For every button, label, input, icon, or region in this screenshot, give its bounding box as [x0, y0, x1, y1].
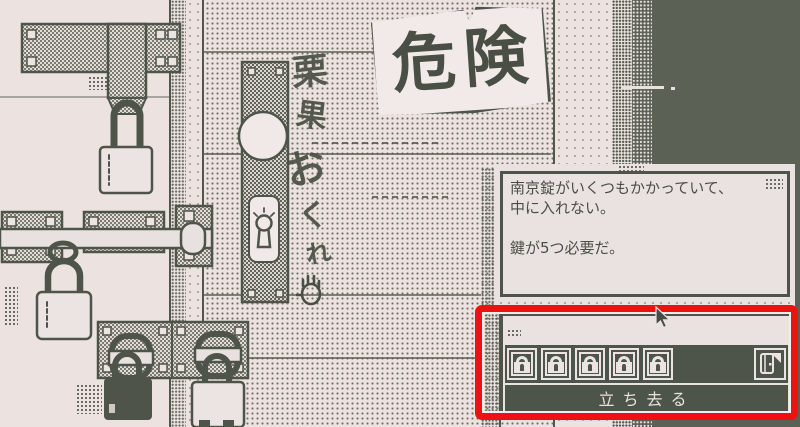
arrow-cursor-icon — [654, 306, 672, 334]
game-screen: 危険 栗果おくれ 南京錠がいくつもかかっていて、 中に入れない。 鍵が5つ必要だ… — [0, 0, 800, 427]
message-text: 南京錠がいくつもかかっていて、 — [510, 179, 733, 197]
message-line-2: 鍵が5つ必要だ。 — [510, 238, 780, 258]
graffiti-column: 栗果おくれ — [286, 55, 356, 325]
highlight-rectangle — [475, 305, 798, 420]
message-line-1: 南京錠がいくつもかかっていて、 中に入れない。 — [510, 178, 780, 218]
message-text: 鍵が5つ必要だ。 — [510, 239, 624, 257]
graffiti-char: 栗 — [291, 53, 328, 93]
graffiti-char: 果 — [294, 99, 329, 134]
graffiti-char: れ — [304, 239, 333, 268]
keyhole-plate — [249, 196, 279, 262]
bottom-hasp-padlocks — [98, 322, 248, 427]
message-box: 南京錠がいくつもかかっていて、 中に入れない。 鍵が5つ必要だ。 — [500, 171, 790, 297]
message-window: 南京錠がいくつもかかっていて、 中に入れない。 鍵が5つ必要だ。 — [495, 164, 795, 310]
message-text: 中に入れない。 — [510, 199, 615, 217]
graffiti-char: お — [282, 145, 330, 193]
graffiti-char: く — [298, 200, 329, 232]
danger-sign-text: 危険 — [382, 24, 538, 98]
door-knob — [239, 112, 287, 160]
door-handle — [239, 62, 288, 302]
slide-bolt-padlock — [0, 206, 212, 339]
message-box-speckle — [765, 178, 783, 190]
danger-sign: 危険 — [369, 2, 552, 120]
hand-graffiti-icon — [296, 273, 326, 307]
top-hasp-padlock — [22, 24, 180, 193]
